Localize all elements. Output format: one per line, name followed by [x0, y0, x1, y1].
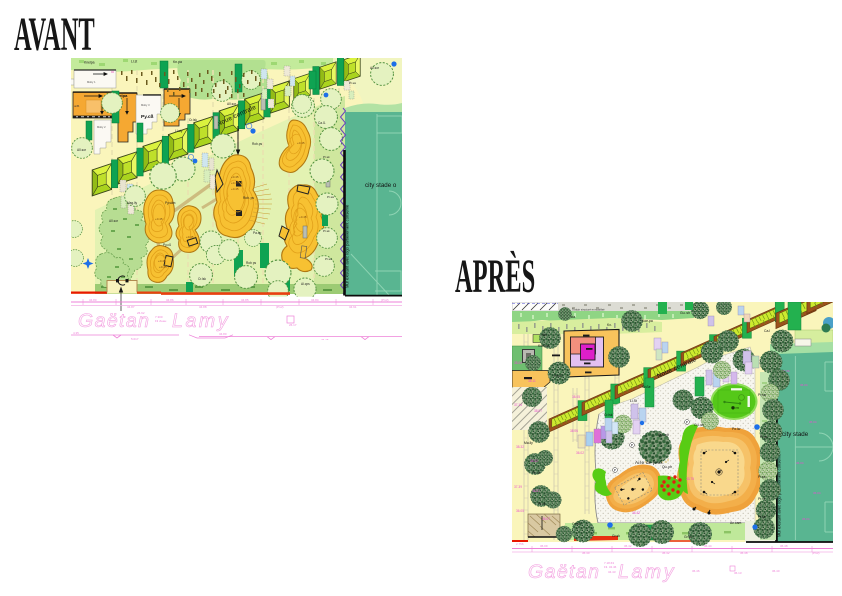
- svg-text:36.04: 36.04: [813, 491, 821, 495]
- svg-text:Pr.vk: Pr.vk: [538, 502, 546, 506]
- svg-text:Pr.se: Pr.se: [758, 497, 766, 501]
- svg-text:Ll.st: Ll.st: [131, 60, 137, 64]
- svg-text:Moby 1: Moby 1: [87, 80, 96, 84]
- svg-text:36.37: 36.37: [532, 489, 540, 493]
- svg-text:38.05: 38.05: [514, 361, 522, 365]
- svg-text:Moby 2: Moby 2: [97, 125, 106, 129]
- svg-text:Ca.ß.: Ca.ß.: [318, 121, 326, 125]
- svg-text:Gaëtan: Gaëtan: [528, 561, 600, 583]
- svg-text:36.44: 36.44: [704, 544, 712, 548]
- svg-text:Py.cß: Py.cß: [554, 374, 562, 378]
- svg-text:38.07: 38.07: [534, 409, 542, 413]
- svg-text:34.86: 34.86: [166, 298, 174, 302]
- svg-text:Pr.sä: Pr.sä: [325, 257, 332, 261]
- svg-text:38.32: 38.32: [516, 445, 524, 449]
- svg-text:Alï.sor: Alï.sor: [227, 102, 237, 106]
- svg-text:+0.45: +0.45: [155, 217, 163, 221]
- svg-text:+0.45: +0.45: [297, 141, 305, 145]
- svg-text:Pr.sa: Pr.sa: [758, 393, 766, 397]
- svg-text:(Prof): (Prof): [812, 551, 820, 555]
- svg-text:36.04: 36.04: [800, 383, 808, 387]
- svg-text:Pa.ap: Pa.ap: [253, 231, 262, 235]
- svg-text:34.88: 34.88: [199, 305, 207, 309]
- svg-text:Km: Km: [542, 333, 547, 337]
- svg-text:Gr.ße: Gr.ße: [642, 385, 651, 389]
- svg-text:33.75: 33.75: [686, 477, 694, 481]
- svg-text:Po.lw: Po.lw: [732, 427, 741, 431]
- svg-text:2.756: 2.756: [516, 542, 524, 546]
- svg-text:Aire de jeux: Aire de jeux: [635, 460, 663, 465]
- svg-text:36.48: 36.48: [780, 544, 788, 548]
- svg-text:Fil. 34.46: Fil. 34.46: [604, 565, 617, 569]
- svg-text:Mag.lly: Mag.lly: [127, 201, 138, 205]
- svg-text:(Prof): (Prof): [276, 305, 284, 309]
- svg-text:Gaëtan: Gaëtan: [78, 310, 150, 332]
- svg-text:Ac.cam: Ac.cam: [730, 521, 741, 525]
- svg-text:26.17: 26.17: [289, 323, 297, 327]
- svg-text:Pr.sä: Pr.sä: [349, 81, 356, 85]
- svg-text:Lamy: Lamy: [618, 561, 676, 583]
- svg-text:Koe.pa: Koe.pa: [538, 344, 549, 348]
- svg-text:36.04: 36.04: [802, 517, 810, 521]
- svg-text:36.32: 36.32: [530, 459, 538, 463]
- svg-text:Py.säm: Py.säm: [165, 201, 176, 205]
- svg-text:36.04: 36.04: [809, 420, 817, 424]
- svg-text:Cr.lsk: Cr.lsk: [198, 277, 206, 281]
- svg-text:Gu..sh: Gu..sh: [694, 423, 704, 427]
- svg-text:city stade o: city stade o: [365, 182, 397, 189]
- svg-text:city stade: city stade: [782, 431, 809, 438]
- svg-text:36.40: 36.40: [772, 569, 780, 573]
- svg-text:Pr.ss: Pr.ss: [758, 475, 766, 479]
- svg-text:Knelpa: Knelpa: [84, 60, 95, 64]
- svg-text:Ca.l: Ca.l: [764, 329, 770, 333]
- svg-text:Alï.sor: Alï.sor: [109, 219, 119, 223]
- svg-text:36.40: 36.40: [582, 551, 590, 555]
- svg-text:36.04: 36.04: [796, 461, 804, 465]
- svg-text:34.91: 34.91: [349, 305, 357, 309]
- svg-text:Pr.ss.: Pr.ss.: [760, 435, 769, 439]
- svg-text:36.42: 36.42: [624, 544, 632, 548]
- svg-text:Cr.lsk: Cr.lsk: [604, 413, 613, 417]
- svg-text:(Prof): (Prof): [381, 298, 389, 302]
- svg-text:Cr.lsk: Cr.lsk: [189, 118, 197, 122]
- svg-text:38.06: 38.06: [570, 429, 578, 433]
- svg-text:Rob. ps: Rob. ps: [243, 196, 254, 200]
- svg-text:Al.cps: Al.cps: [301, 282, 310, 286]
- svg-text:Alï.sor: Alï.sor: [370, 66, 380, 70]
- svg-text:+0.45: +0.45: [299, 215, 307, 219]
- svg-text:Ll.sty: Ll.sty: [175, 129, 183, 133]
- svg-text:36.48: 36.48: [740, 551, 748, 555]
- svg-text:34.80: 34.80: [219, 332, 227, 336]
- svg-text:36.02: 36.02: [576, 451, 584, 455]
- svg-text:+0.45: +0.45: [231, 187, 239, 191]
- svg-text:34.85: 34.85: [241, 298, 249, 302]
- svg-text:+0.45: +0.45: [159, 265, 167, 269]
- svg-text:Pr.sk: Pr.sk: [323, 155, 330, 159]
- svg-text:Trottoir structuré en stabilis: Trottoir structuré en stabilisé: [572, 307, 605, 311]
- svg-text:Rob.ps: Rob.ps: [252, 142, 263, 146]
- svg-text:Ll.St: Ll.St: [630, 399, 637, 403]
- svg-text:Moby 3: Moby 3: [141, 103, 150, 107]
- svg-text:26.45: 26.45: [321, 338, 329, 340]
- svg-text:Alï.sor: Alï.sor: [77, 148, 87, 152]
- svg-text:onB.: onB.: [74, 104, 80, 108]
- svg-text:34.84: 34.84: [311, 298, 319, 302]
- svg-text:Pr.sk: Pr.sk: [323, 229, 330, 233]
- svg-text:Qu..ph: Qu..ph: [662, 465, 672, 469]
- svg-text:34.87: 34.87: [127, 305, 135, 309]
- svg-text:+0.45: +0.45: [231, 181, 239, 185]
- svg-text:38.11: 38.11: [528, 379, 536, 383]
- svg-text:Kx.: Kx.: [607, 323, 612, 327]
- svg-text:36.42: 36.42: [662, 551, 670, 555]
- svg-text:Gr.sk: Gr.sk: [612, 534, 620, 538]
- svg-text:36.09: 36.09: [540, 544, 548, 548]
- svg-text:Py.cß: Py.cß: [163, 243, 171, 247]
- svg-text:36.05: 36.05: [516, 509, 524, 513]
- svg-text:+0.45: +0.45: [158, 259, 166, 263]
- svg-text:Pn.ck: Pn.ck: [532, 471, 541, 475]
- svg-text:Ma.lly: Ma.lly: [524, 441, 533, 445]
- svg-text:36.46: 36.46: [692, 569, 700, 573]
- svg-text:34.43: 34.43: [608, 570, 616, 574]
- svg-text:Koe.pa: Koe.pa: [642, 319, 653, 323]
- svg-text:Gr.sk: Gr.sk: [684, 535, 692, 539]
- svg-text:Gu..sh: Gu..sh: [680, 311, 690, 315]
- svg-text:+0.45: +0.45: [231, 175, 239, 179]
- svg-text:Kn.pa: Kn.pa: [173, 60, 182, 64]
- svg-text:37.14: 37.14: [514, 403, 522, 407]
- svg-text:36.42: 36.42: [632, 511, 640, 515]
- svg-text:Pr.se: Pr.se: [758, 515, 766, 519]
- svg-text:37.39: 37.39: [514, 485, 522, 489]
- svg-text:+0.45: +0.45: [186, 235, 194, 239]
- svg-text:5.017: 5.017: [131, 337, 139, 340]
- svg-text:Pr.sä: Pr.sä: [327, 195, 334, 199]
- svg-text:Qu...ph: Qu...ph: [658, 433, 669, 437]
- svg-text:Lamy: Lamy: [172, 310, 230, 332]
- svg-text:Mur existant avec logo partiel: Mur existant avec logo partiellement con…: [345, 204, 350, 288]
- svg-text:34.80: 34.80: [89, 298, 97, 302]
- svg-text:Cé.sh: Cé.sh: [572, 522, 581, 526]
- svg-text:4.35: 4.35: [73, 331, 79, 335]
- svg-text:36.07: 36.07: [542, 517, 550, 521]
- svg-text:PB: PB: [736, 406, 740, 410]
- svg-text:38.05: 38.05: [572, 395, 580, 399]
- svg-text:Rob ps: Rob ps: [246, 261, 257, 265]
- svg-text:Fil d'eau: Fil d'eau: [155, 319, 167, 323]
- svg-text:Py.cß: Py.cß: [141, 114, 154, 120]
- svg-text:36.13: 36.13: [734, 571, 742, 575]
